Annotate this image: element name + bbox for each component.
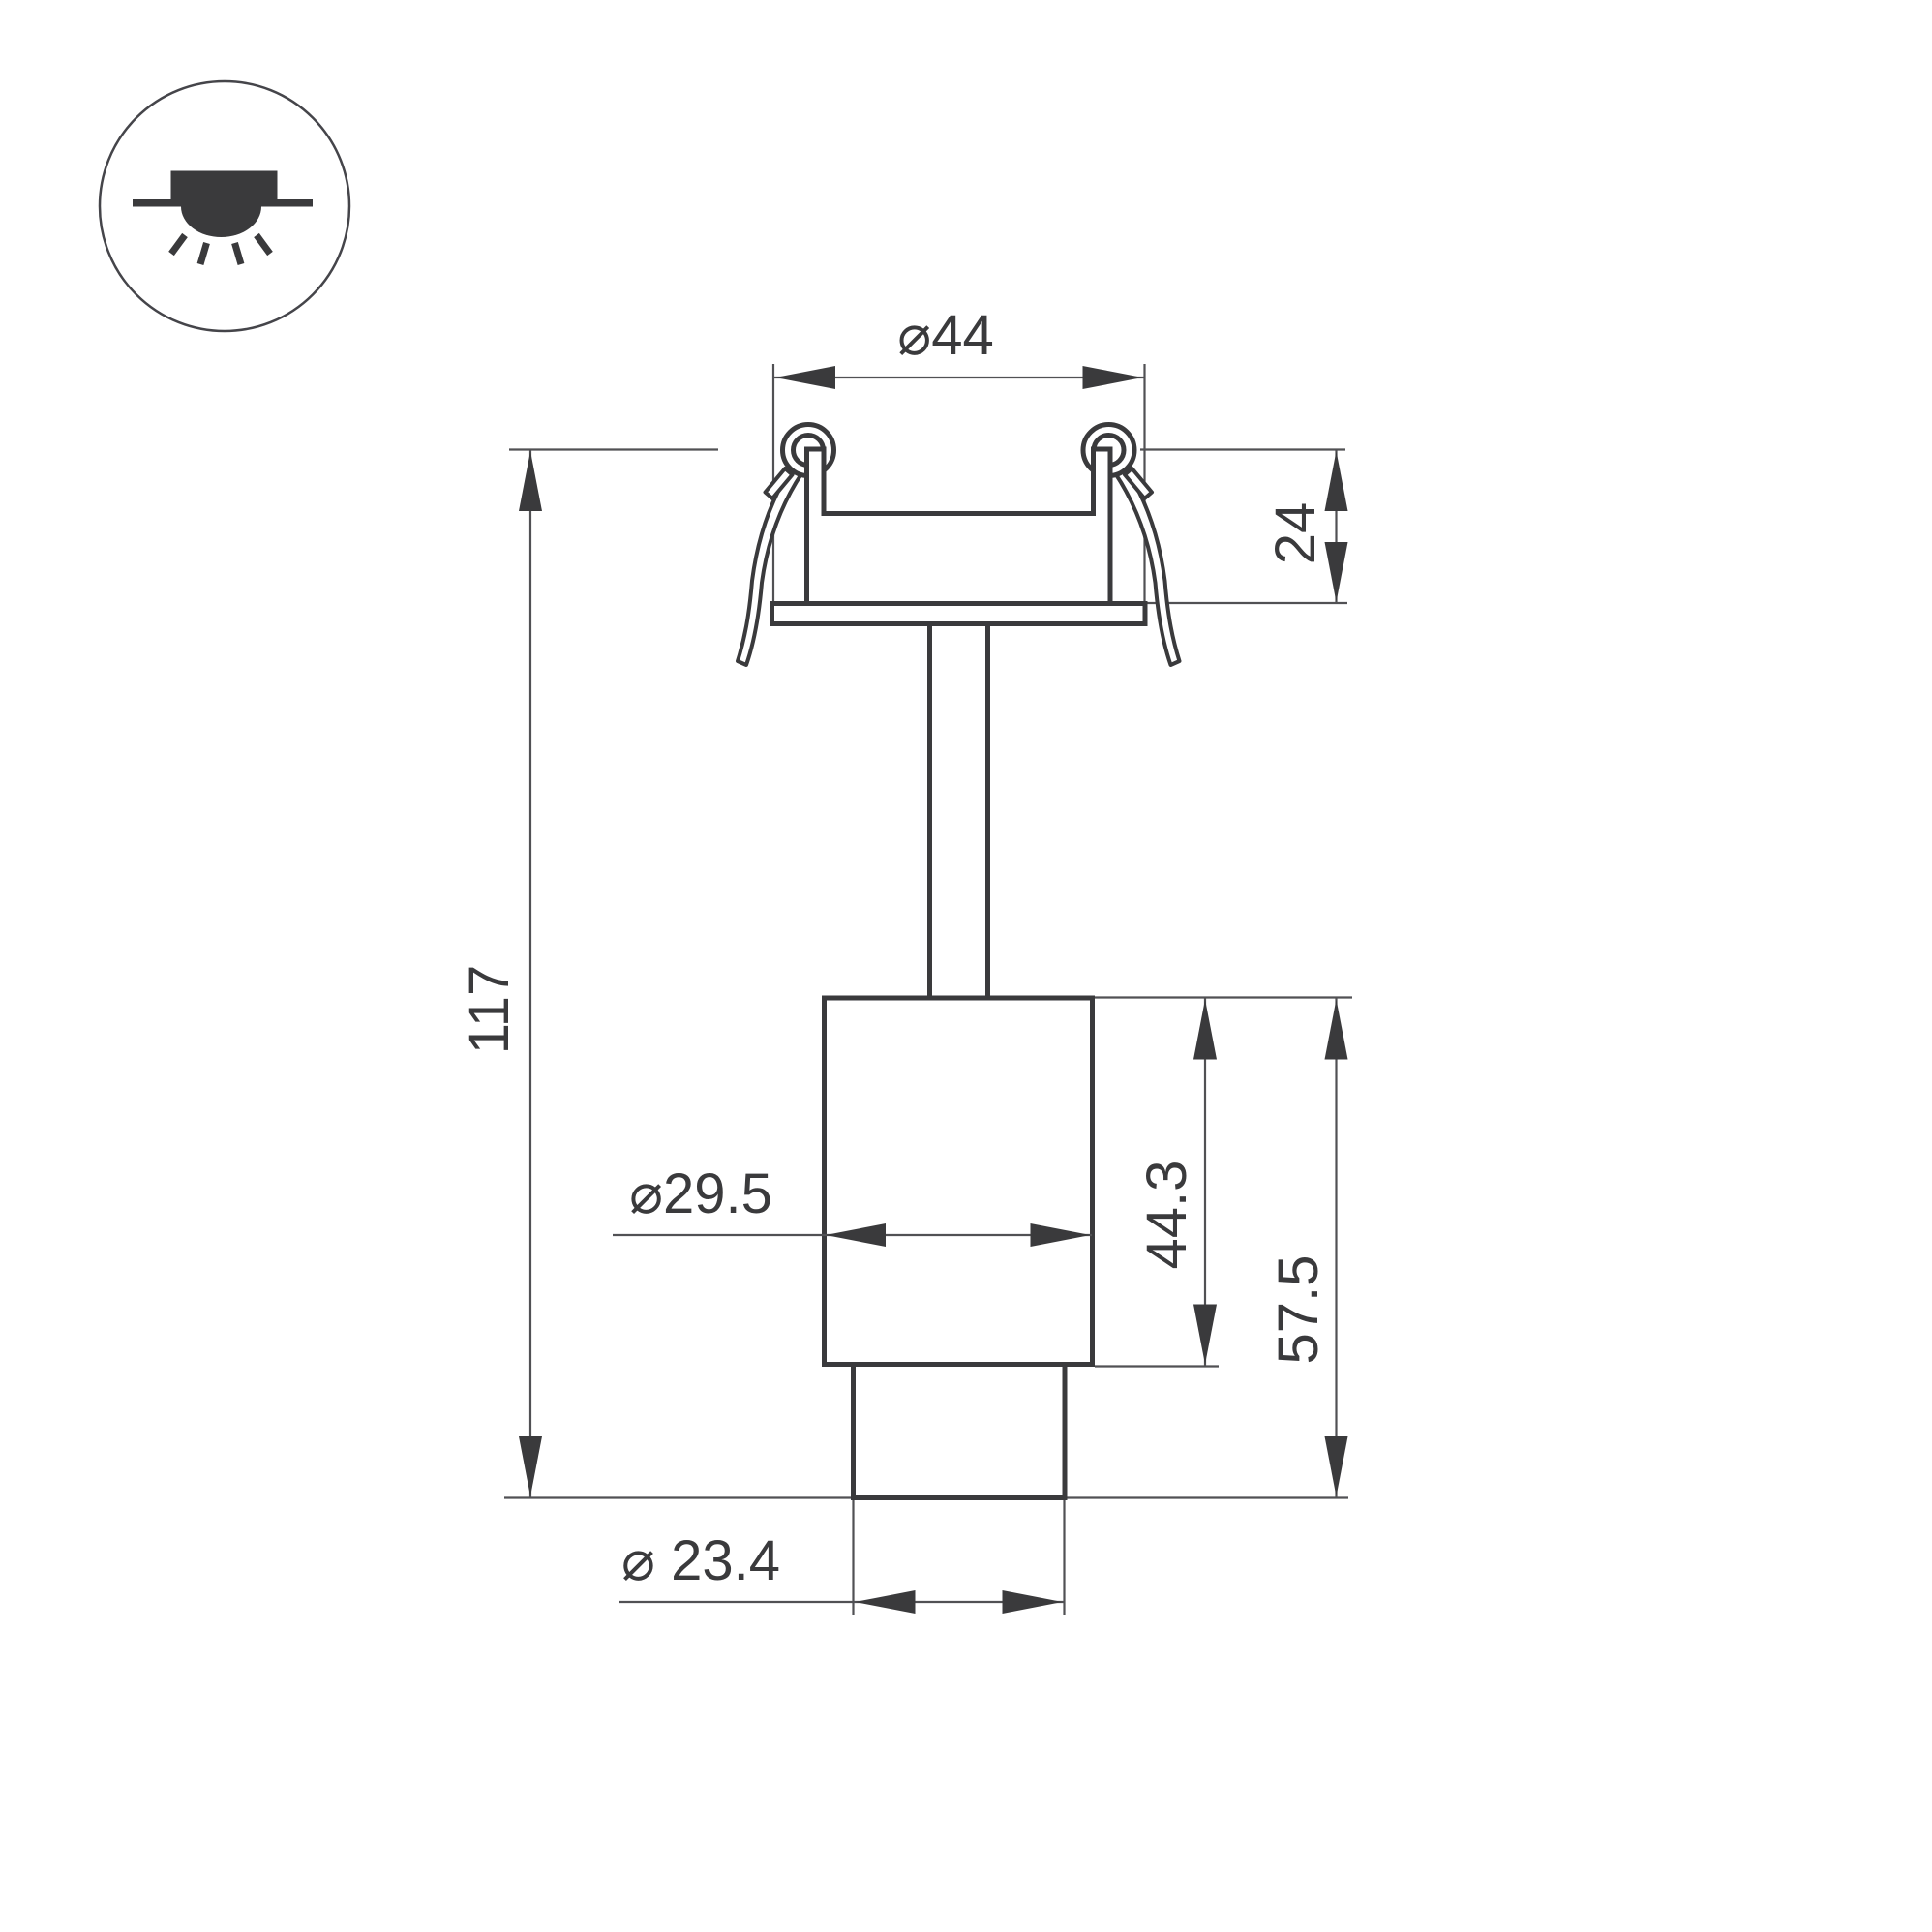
stem — [930, 625, 988, 998]
dim-total-height: 117 — [458, 450, 718, 1498]
recessed-downlight-icon — [100, 81, 349, 331]
fixture-section — [738, 425, 1180, 1498]
dim-label-total-height: 117 — [458, 965, 521, 1054]
lamp-body — [825, 998, 1093, 1365]
dim-label-body-height: 44.3 — [1135, 1161, 1198, 1270]
icon-light-rays — [171, 235, 270, 264]
dim-label-body-diameter: ⌀29.5 — [629, 1162, 772, 1225]
dim-label-top-diameter: ⌀44 — [897, 304, 993, 367]
lamp-tip-cylinder — [854, 1365, 1066, 1498]
icon-housing-block — [171, 171, 278, 201]
technical-drawing: ⌀44 24 117 44.3 57.5 — [0, 0, 1932, 1932]
dim-recess-depth: 24 — [1140, 450, 1348, 604]
dim-tip-diameter: ⌀ 23.4 — [619, 1499, 1065, 1615]
trim-flange — [772, 604, 1146, 624]
icon-ceiling-line — [133, 199, 313, 207]
drawing-page: ⌀44 24 117 44.3 57.5 — [0, 0, 1932, 1932]
icon-lamp-dome — [181, 207, 261, 238]
dim-label-tip-diameter: ⌀ 23.4 — [621, 1529, 780, 1592]
dim-label-lower-section-height: 57.5 — [1267, 1255, 1330, 1365]
dim-lower-section-height: 57.5 — [1267, 998, 1348, 1497]
mounting-cup-outline — [807, 449, 1111, 606]
dim-label-recess-depth: 24 — [1264, 502, 1327, 565]
